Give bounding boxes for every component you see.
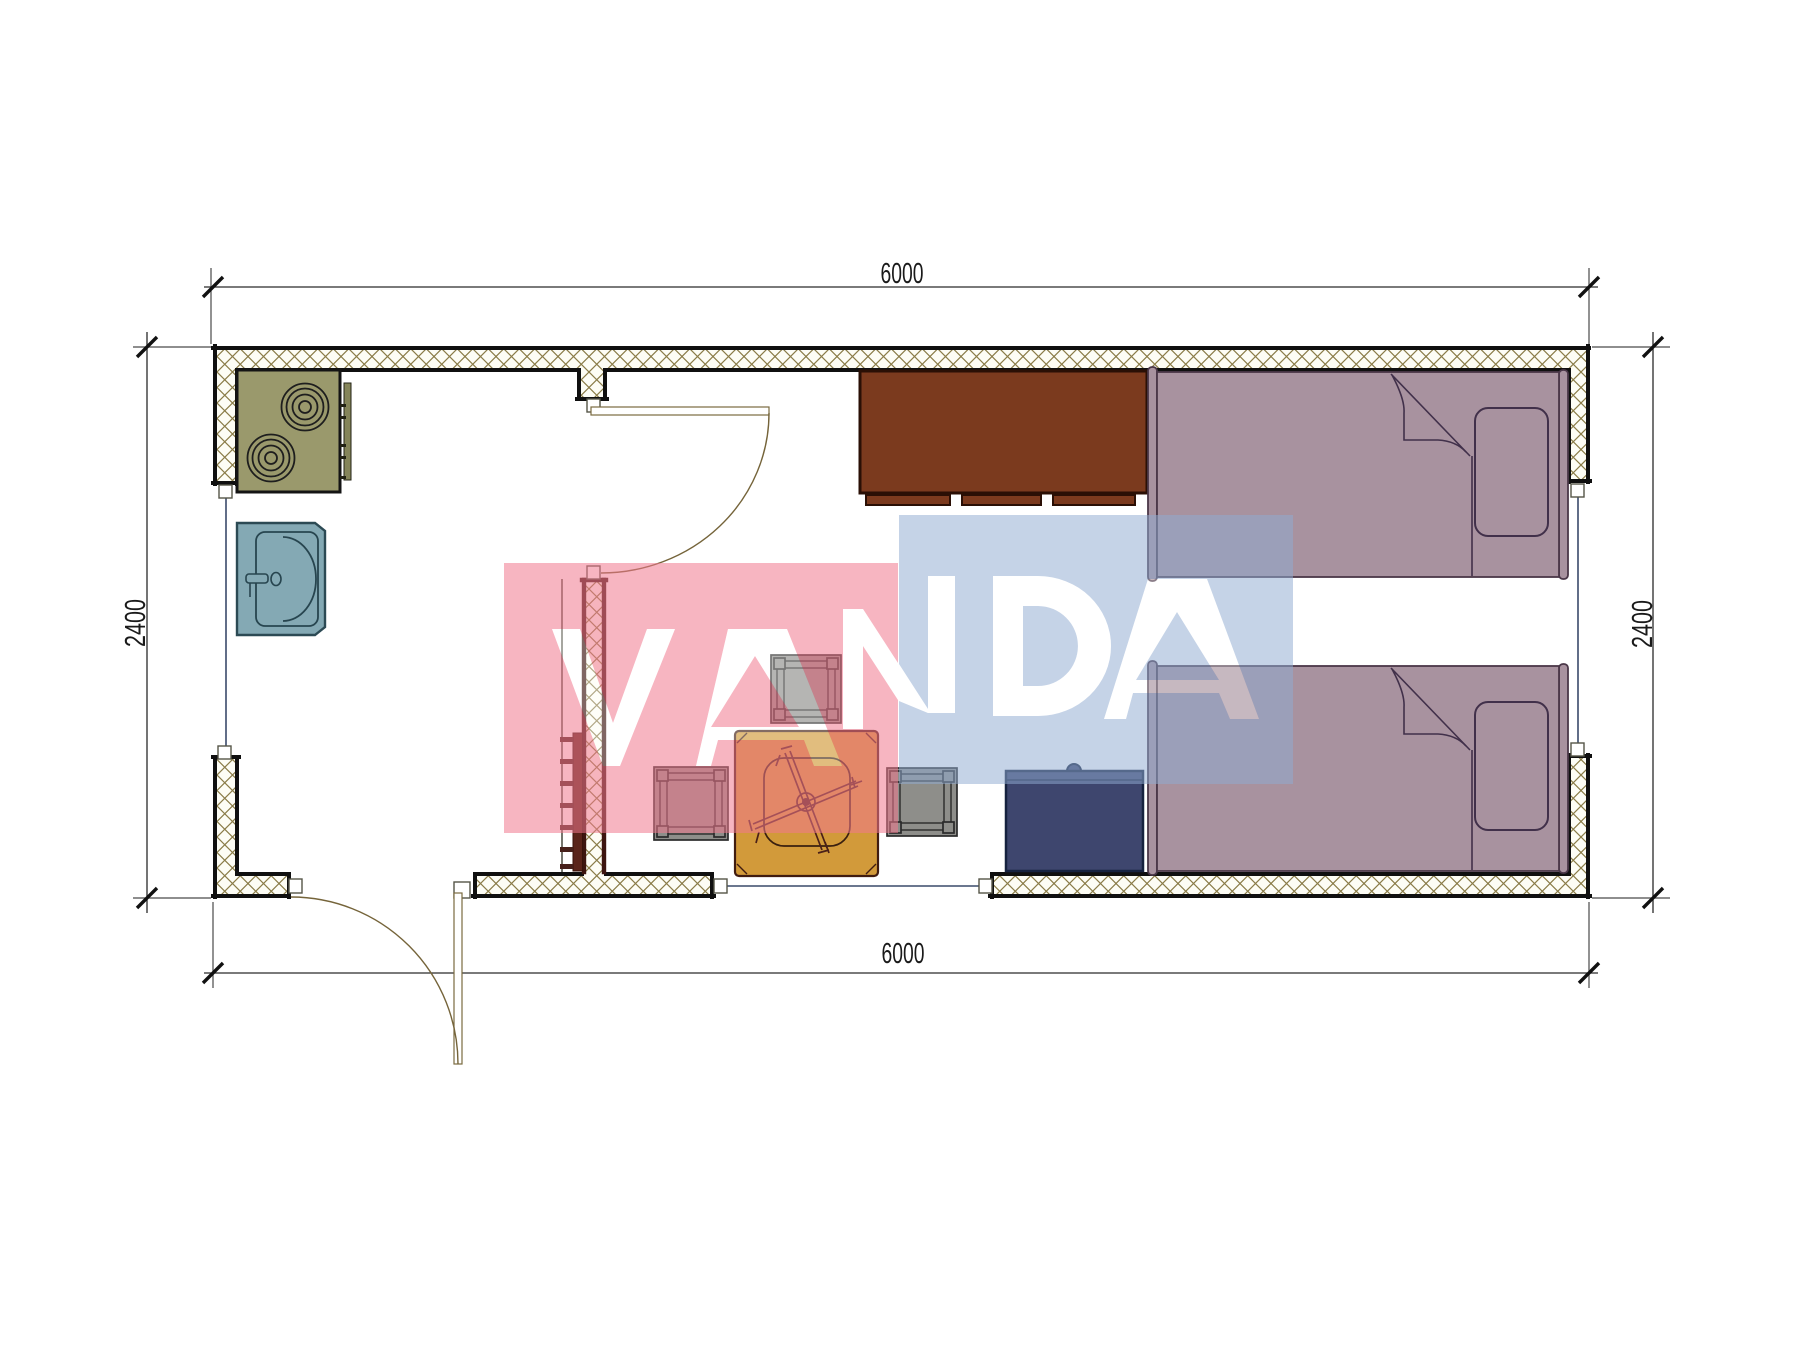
svg-text:2400: 2400 bbox=[120, 599, 152, 647]
svg-text:2400: 2400 bbox=[1627, 600, 1659, 648]
svg-text:6000: 6000 bbox=[881, 258, 924, 290]
svg-text:6000: 6000 bbox=[882, 938, 925, 970]
